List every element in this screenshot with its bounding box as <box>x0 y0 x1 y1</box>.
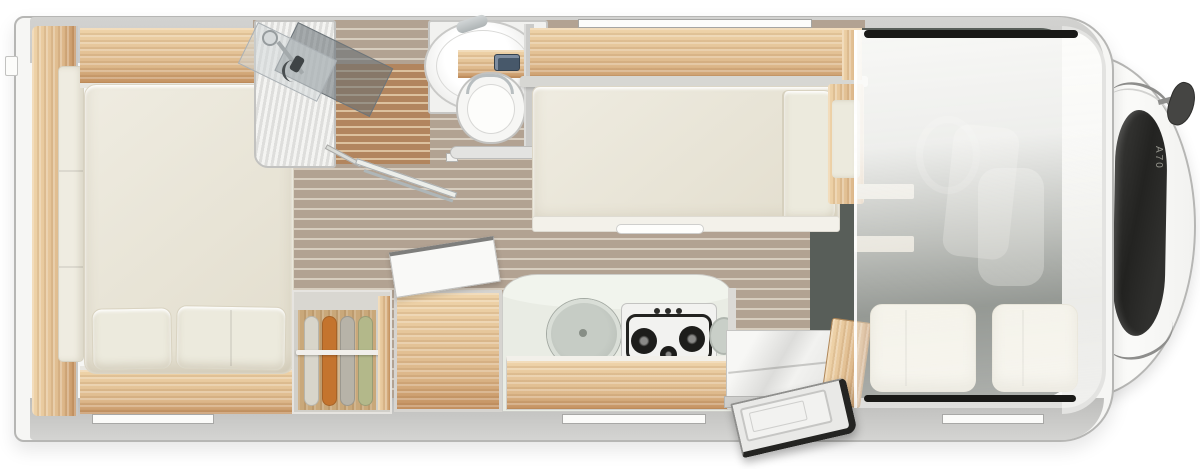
headboard-cushion-seam <box>59 170 83 172</box>
motorhome-floorplan: A70 <box>0 0 1200 469</box>
cab-side-window-bottom <box>864 395 1076 402</box>
window-bottom-rear <box>92 414 214 424</box>
closet-side-panel <box>378 296 390 410</box>
windshield <box>1112 110 1168 337</box>
sink-knob <box>579 329 587 337</box>
bedroom-top-cabinet <box>80 28 256 88</box>
hob-knob <box>665 308 671 314</box>
shower-head-icon <box>262 30 278 46</box>
window-bottom-kitchen <box>562 414 706 424</box>
sofa-step-handle <box>616 224 704 234</box>
cab-side-window-top <box>864 30 1078 38</box>
sofa-headboard-cabinet <box>530 28 862 82</box>
window-bottom-cab <box>942 414 1044 424</box>
bathroom-corner-wall <box>450 146 536 159</box>
headboard-cushion <box>58 66 84 362</box>
clothes-closet <box>292 290 392 414</box>
hob-burner <box>679 326 705 352</box>
exterior-vent <box>5 56 18 76</box>
model-badge: A70 <box>1148 146 1164 192</box>
bed-pillow <box>91 307 172 370</box>
clothes-rail <box>296 350 380 355</box>
hanging-garment <box>358 316 373 406</box>
hanging-garment <box>340 316 355 406</box>
toilet-flush-panel <box>494 54 520 71</box>
alcove-bed-overlay <box>854 30 1102 408</box>
hanging-garment <box>304 316 319 406</box>
kitchen-drawers <box>506 356 728 410</box>
headboard-cushion-seam <box>59 266 83 268</box>
side-mirror <box>1163 79 1200 129</box>
hob-burner <box>631 328 657 354</box>
window-top <box>578 19 812 28</box>
closet-top-shelf <box>294 292 390 310</box>
hob-knob <box>654 308 660 314</box>
kitchen-cabinet <box>394 290 502 412</box>
hanging-garment <box>322 316 337 406</box>
bed-pillow-seam <box>230 310 232 366</box>
hob-knob <box>676 308 682 314</box>
